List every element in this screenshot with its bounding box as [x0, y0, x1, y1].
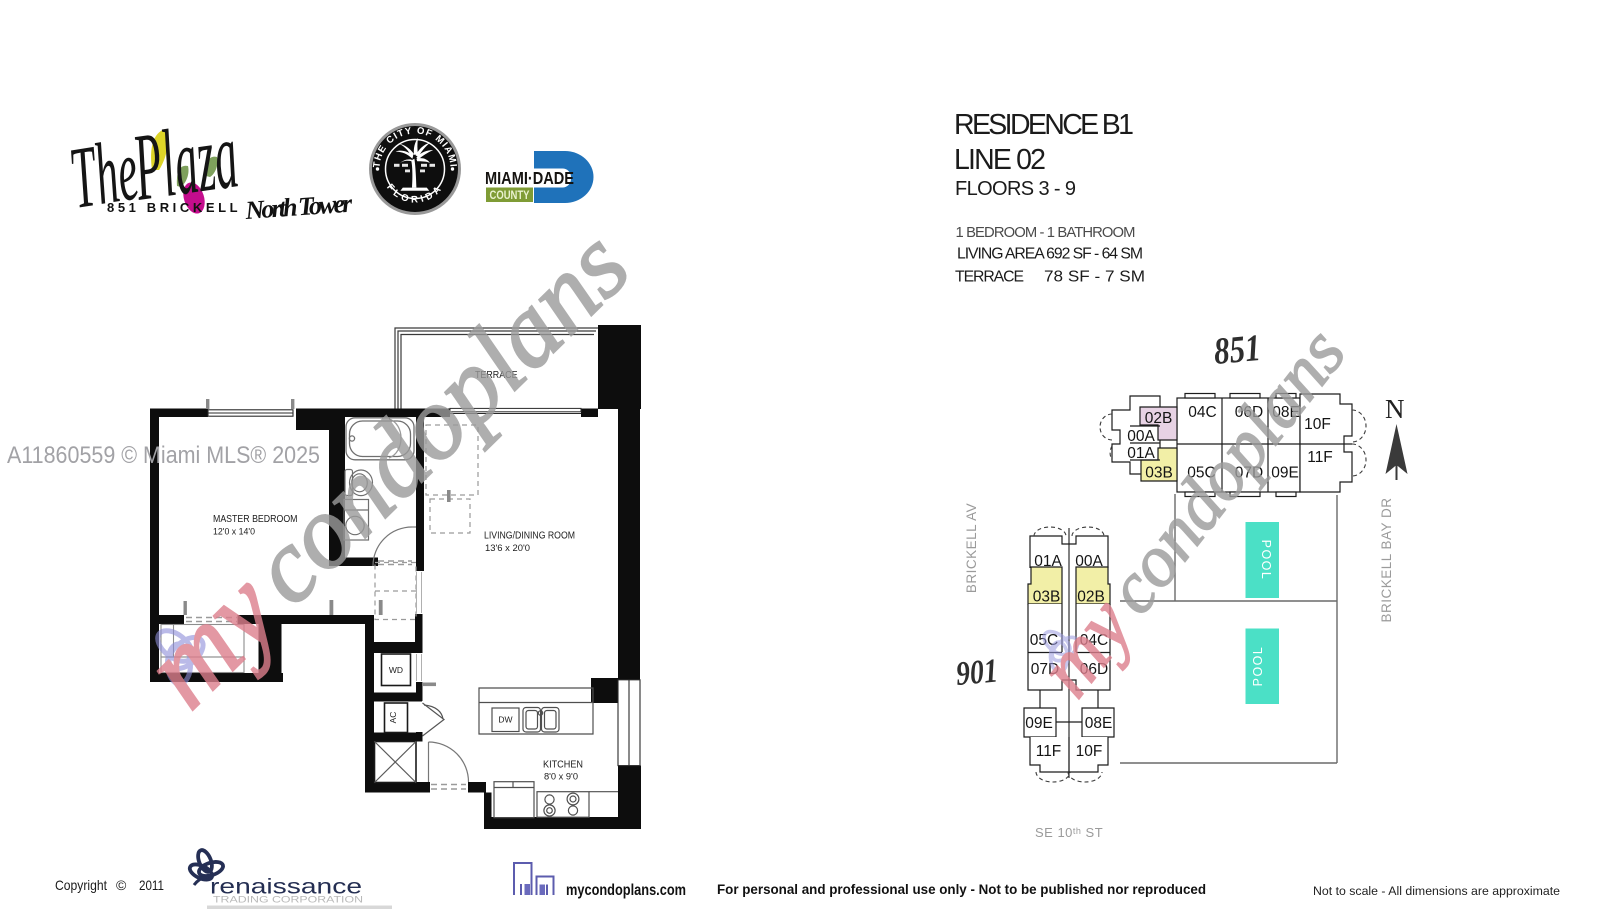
- svg-text:02B: 02B: [1145, 410, 1173, 427]
- svg-text:10F: 10F: [1076, 743, 1103, 760]
- svg-text:04C: 04C: [1188, 404, 1216, 421]
- svg-text:mycondoplans.com: mycondoplans.com: [566, 882, 686, 899]
- svg-text:N: N: [1385, 394, 1405, 424]
- svg-text:DW: DW: [498, 715, 512, 725]
- svg-text:FLOORS 3 - 9: FLOORS 3 - 9: [955, 178, 1076, 200]
- svg-text:POOL: POOL: [1259, 540, 1273, 581]
- svg-text:BRICKELL BAY DR: BRICKELL BAY DR: [1379, 497, 1394, 622]
- svg-text:COUNTY: COUNTY: [490, 188, 530, 202]
- svg-text:8'0 x 9'0: 8'0 x 9'0: [544, 772, 578, 783]
- svg-text:MIAMI·DADE: MIAMI·DADE: [485, 168, 574, 188]
- svg-text:11F: 11F: [1307, 449, 1333, 466]
- svg-text:SE 10th ST: SE 10th ST: [1035, 825, 1103, 840]
- svg-text:08E: 08E: [1085, 715, 1113, 732]
- svg-text:11F: 11F: [1036, 743, 1062, 760]
- svg-text:13'6 x 20'0: 13'6 x 20'0: [485, 543, 530, 554]
- svg-text:©: ©: [116, 877, 127, 893]
- svg-text:AC: AC: [388, 712, 398, 724]
- svg-text:2011: 2011: [139, 877, 164, 893]
- svg-text:KITCHEN: KITCHEN: [543, 760, 583, 771]
- svg-text:RESIDENCE B1: RESIDENCE B1: [954, 109, 1134, 141]
- svg-text:Copyright: Copyright: [55, 877, 107, 893]
- svg-text:WD: WD: [389, 665, 403, 675]
- svg-text:09E: 09E: [1025, 715, 1053, 732]
- svg-text:LINE 02: LINE 02: [954, 144, 1046, 176]
- svg-text:01A: 01A: [1127, 445, 1155, 462]
- svg-text:03B: 03B: [1033, 589, 1061, 606]
- svg-text:North Tower: North Tower: [243, 189, 354, 226]
- svg-text:78 SF - 7 SM: 78 SF - 7 SM: [1044, 269, 1145, 286]
- svg-text:901: 901: [954, 651, 999, 693]
- svg-text:LIVING/DINING ROOM: LIVING/DINING ROOM: [484, 531, 575, 542]
- svg-text:For personal and professional: For personal and professional use only -…: [717, 882, 1206, 898]
- svg-text:1 BEDROOM - 1 BATHROOM: 1 BEDROOM - 1 BATHROOM: [956, 225, 1136, 241]
- svg-text:A11860559 © Miami MLS® 2025: A11860559 © Miami MLS® 2025: [7, 442, 320, 469]
- svg-text:01A: 01A: [1034, 553, 1062, 570]
- svg-text:TRADING CORPORATION: TRADING CORPORATION: [213, 895, 363, 905]
- svg-text:851 BRICKELL: 851 BRICKELL: [107, 200, 241, 215]
- svg-text:TERRACE: TERRACE: [955, 269, 1024, 286]
- svg-text:BRICKELL AV: BRICKELL AV: [964, 503, 979, 593]
- svg-text:00A: 00A: [1127, 428, 1155, 445]
- svg-text:Not to scale - All dimensions: Not to scale - All dimensions are approx…: [1313, 884, 1560, 898]
- svg-text:POOL: POOL: [1251, 646, 1265, 687]
- svg-text:LIVING AREA 692 SF - 64 SM: LIVING AREA 692 SF - 64 SM: [957, 246, 1143, 263]
